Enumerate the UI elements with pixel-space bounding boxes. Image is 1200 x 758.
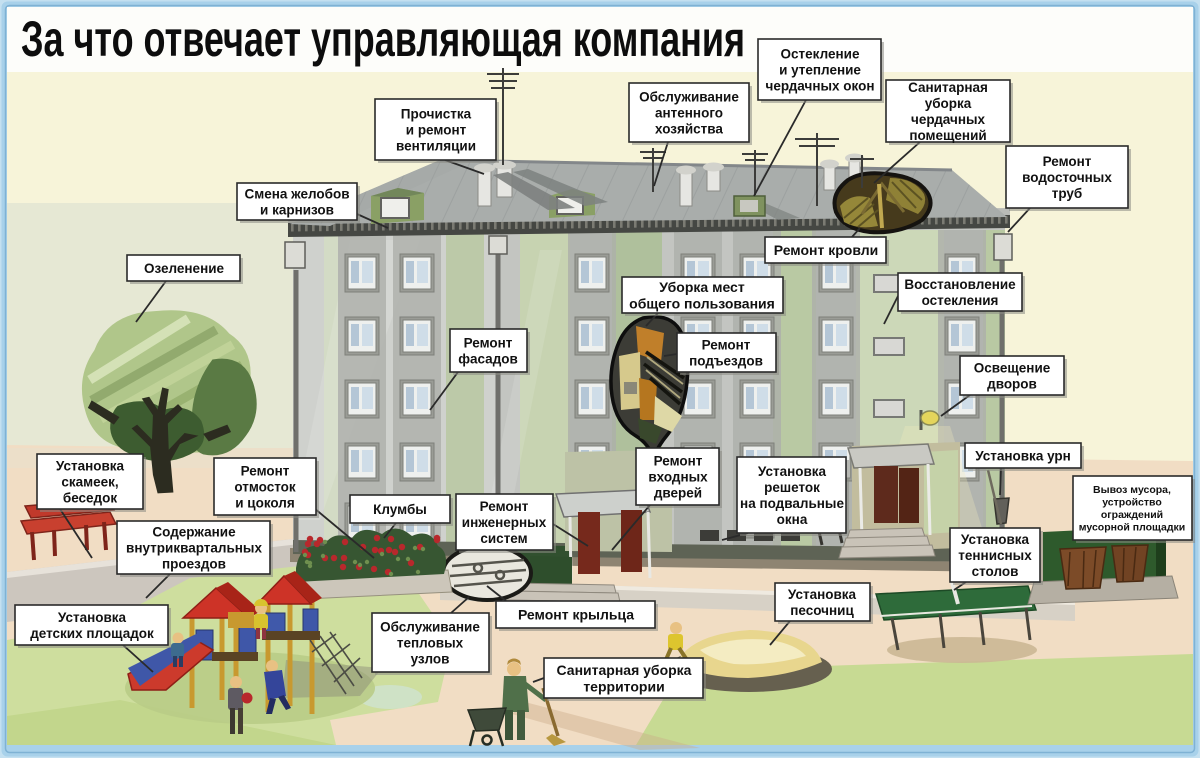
svg-text:Установка урн: Установка урн — [975, 448, 1071, 463]
svg-text:мусорной площадки: мусорной площадки — [1079, 521, 1186, 533]
svg-text:общего пользования: общего пользования — [629, 295, 775, 311]
svg-text:решеток: решеток — [764, 480, 820, 495]
svg-text:Установка: Установка — [758, 464, 827, 479]
svg-text:на подвальные: на подвальные — [740, 496, 844, 511]
svg-text:дворов: дворов — [987, 376, 1037, 391]
svg-text:Установка: Установка — [961, 532, 1030, 547]
svg-text:тепловых: тепловых — [397, 635, 464, 650]
svg-text:Ремонт: Ремонт — [702, 337, 751, 352]
svg-text:водосточных: водосточных — [1022, 170, 1112, 185]
svg-text:подъездов: подъездов — [689, 353, 763, 368]
svg-text:Озеленение: Озеленение — [144, 261, 225, 276]
svg-text:и цоколя: и цоколя — [235, 495, 295, 510]
svg-text:Ремонт: Ремонт — [464, 335, 513, 350]
svg-text:Смена желобов: Смена желобов — [244, 186, 349, 201]
svg-text:устройство: устройство — [1102, 497, 1162, 509]
svg-text:Остекление: Остекление — [781, 46, 860, 61]
svg-text:чердачных окон: чердачных окон — [765, 78, 874, 93]
svg-text:узлов: узлов — [411, 651, 450, 666]
svg-text:Обслуживание: Обслуживание — [380, 619, 480, 634]
svg-text:Установка: Установка — [56, 458, 125, 473]
svg-text:труб: труб — [1052, 186, 1083, 201]
svg-text:территории: территории — [583, 678, 664, 694]
svg-text:Восстановление: Восстановление — [904, 277, 1016, 292]
svg-text:и карнизов: и карнизов — [260, 202, 334, 217]
svg-text:вентиляции: вентиляции — [396, 138, 476, 153]
svg-text:Установка: Установка — [788, 587, 857, 602]
svg-text:окна: окна — [777, 512, 808, 527]
svg-text:хозяйства: хозяйства — [655, 121, 723, 136]
svg-text:беседок: беседок — [63, 490, 118, 505]
svg-text:Клумбы: Клумбы — [373, 502, 427, 517]
svg-text:Ремонт крыльца: Ремонт крыльца — [518, 607, 634, 623]
svg-text:Содержание: Содержание — [152, 524, 236, 539]
svg-text:Ремонт: Ремонт — [1043, 154, 1092, 169]
svg-text:Обслуживание: Обслуживание — [639, 89, 739, 104]
svg-text:систем: систем — [480, 531, 527, 546]
svg-text:фасадов: фасадов — [458, 351, 518, 366]
svg-text:Санитарная: Санитарная — [908, 80, 988, 95]
svg-text:столов: столов — [972, 564, 1019, 579]
svg-text:антенного: антенного — [655, 105, 723, 120]
svg-text:скамеек,: скамеек, — [61, 474, 118, 489]
svg-text:внутриквартальных: внутриквартальных — [126, 540, 262, 555]
svg-text:помещений: помещений — [909, 128, 986, 143]
svg-text:Ремонт: Ремонт — [480, 499, 529, 514]
svg-text:уборка: уборка — [925, 96, 972, 111]
svg-text:чердачных: чердачных — [911, 112, 986, 127]
svg-text:песочниц: песочниц — [790, 603, 854, 618]
svg-text:Ремонт: Ремонт — [654, 453, 703, 468]
svg-text:Ремонт: Ремонт — [241, 463, 290, 478]
svg-text:Прочистка: Прочистка — [401, 106, 472, 121]
svg-text:Установка: Установка — [58, 610, 127, 625]
svg-text:Ремонт кровли: Ремонт кровли — [774, 242, 879, 258]
svg-text:отмосток: отмосток — [234, 479, 296, 494]
svg-text:Вывоз мусора,: Вывоз мусора, — [1093, 484, 1171, 496]
svg-text:и утепление: и утепление — [779, 62, 861, 77]
svg-text:Санитарная уборка: Санитарная уборка — [557, 662, 692, 678]
svg-text:За что отвечает управляющая ко: За что отвечает управляющая компания — [21, 11, 745, 67]
svg-text:и ремонт: и ремонт — [406, 122, 467, 137]
svg-text:Уборка мест: Уборка мест — [659, 279, 745, 295]
svg-text:детских площадок: детских площадок — [30, 626, 154, 641]
svg-text:инженерных: инженерных — [462, 515, 547, 530]
svg-text:теннисных: теннисных — [958, 548, 1032, 563]
svg-text:Освещение: Освещение — [974, 360, 1051, 375]
svg-text:входных: входных — [648, 469, 708, 484]
svg-text:дверей: дверей — [654, 485, 702, 500]
svg-text:проездов: проездов — [162, 556, 226, 571]
svg-text:ограждений: ограждений — [1101, 509, 1163, 521]
svg-text:остекления: остекления — [922, 293, 999, 308]
